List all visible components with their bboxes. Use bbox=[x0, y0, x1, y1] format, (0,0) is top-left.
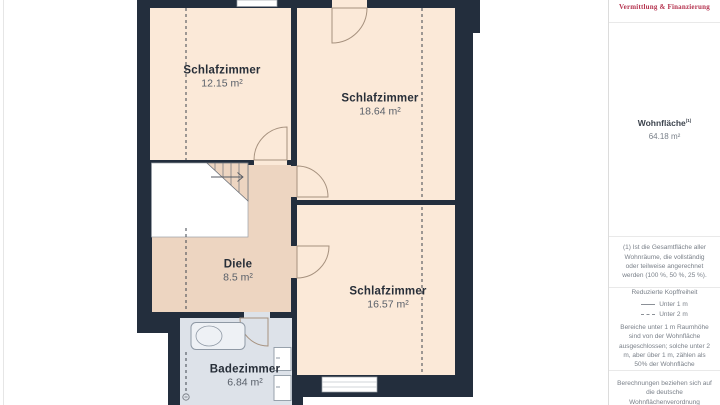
room-name: Schlafzimmer bbox=[349, 286, 426, 298]
floorplan-canvas[interactable]: Schlafzimmer 12.15 m² Schlafzimmer 18.64… bbox=[0, 0, 608, 405]
headroom-description: Bereiche unter 1 m Raumhöhe sind von der… bbox=[617, 323, 712, 370]
bathtub-icon bbox=[191, 323, 245, 350]
footnote-section: (1) Ist die Gesamtfläche aller Wohnräume… bbox=[609, 237, 720, 288]
room-label: Diele 8.5 m² bbox=[223, 259, 253, 284]
room-name: Diele bbox=[223, 259, 253, 271]
door-gap bbox=[332, 0, 367, 8]
room-area: 16.57 m² bbox=[349, 299, 426, 311]
room-label: Schlafzimmer 12.15 m² bbox=[183, 65, 260, 90]
floorplan-app: Schlafzimmer 12.15 m² Schlafzimmer 18.64… bbox=[0, 0, 720, 405]
room-name: Schlafzimmer bbox=[183, 65, 260, 77]
door-gap bbox=[291, 166, 297, 197]
room-area: 6.84 m² bbox=[210, 377, 280, 389]
room-label: Schlafzimmer 18.64 m² bbox=[341, 93, 418, 118]
living-area-label: Wohnfläche(1) bbox=[638, 118, 692, 128]
room-label: Badezimmer 6.84 m² bbox=[210, 364, 280, 389]
brand-logo: Vermittlung & Finanzierung bbox=[609, 0, 720, 23]
room-area: 8.5 m² bbox=[223, 272, 253, 284]
window bbox=[237, 0, 277, 7]
disclaimer-text: Berechnungen beziehen sich auf die deuts… bbox=[617, 379, 712, 405]
room-name: Badezimmer bbox=[210, 364, 280, 376]
headroom-legend-section: Reduzierte Kopffreiheit Unter 1 m Unter … bbox=[609, 288, 720, 371]
room-label: Schlafzimmer 16.57 m² bbox=[349, 286, 426, 311]
staircase-icon bbox=[152, 163, 249, 237]
room-name: Schlafzimmer bbox=[341, 93, 418, 105]
room-area: 12.15 m² bbox=[183, 78, 260, 90]
headroom-title: Reduzierte Kopffreiheit bbox=[631, 288, 697, 297]
disclaimer-section: Berechnungen beziehen sich auf die deuts… bbox=[609, 371, 720, 405]
legend-row-under-1m: Unter 1 m bbox=[641, 301, 688, 308]
dashed-line-icon bbox=[641, 314, 655, 315]
room-area: 18.64 m² bbox=[341, 106, 418, 118]
living-area-value: 64.18 m² bbox=[649, 132, 681, 141]
floorplan-drawing bbox=[0, 0, 608, 405]
solid-line-icon bbox=[641, 304, 655, 305]
door-gap bbox=[244, 312, 270, 318]
legend-row-under-2m: Unter 2 m bbox=[641, 311, 688, 318]
brand-logo-text: Vermittlung & Finanzierung bbox=[619, 3, 710, 11]
legend-label: Unter 1 m bbox=[659, 301, 688, 308]
living-area-section: Wohnfläche(1) 64.18 m² bbox=[609, 23, 720, 237]
footnote-text: (1) Ist die Gesamtfläche aller Wohnräume… bbox=[618, 243, 711, 281]
info-sidebar: Vermittlung & Finanzierung Wohnfläche(1)… bbox=[608, 0, 720, 405]
door-gap bbox=[291, 246, 297, 278]
legend-label: Unter 2 m bbox=[659, 311, 688, 318]
window bbox=[322, 377, 377, 392]
footnote-marker: (1) bbox=[686, 118, 692, 123]
